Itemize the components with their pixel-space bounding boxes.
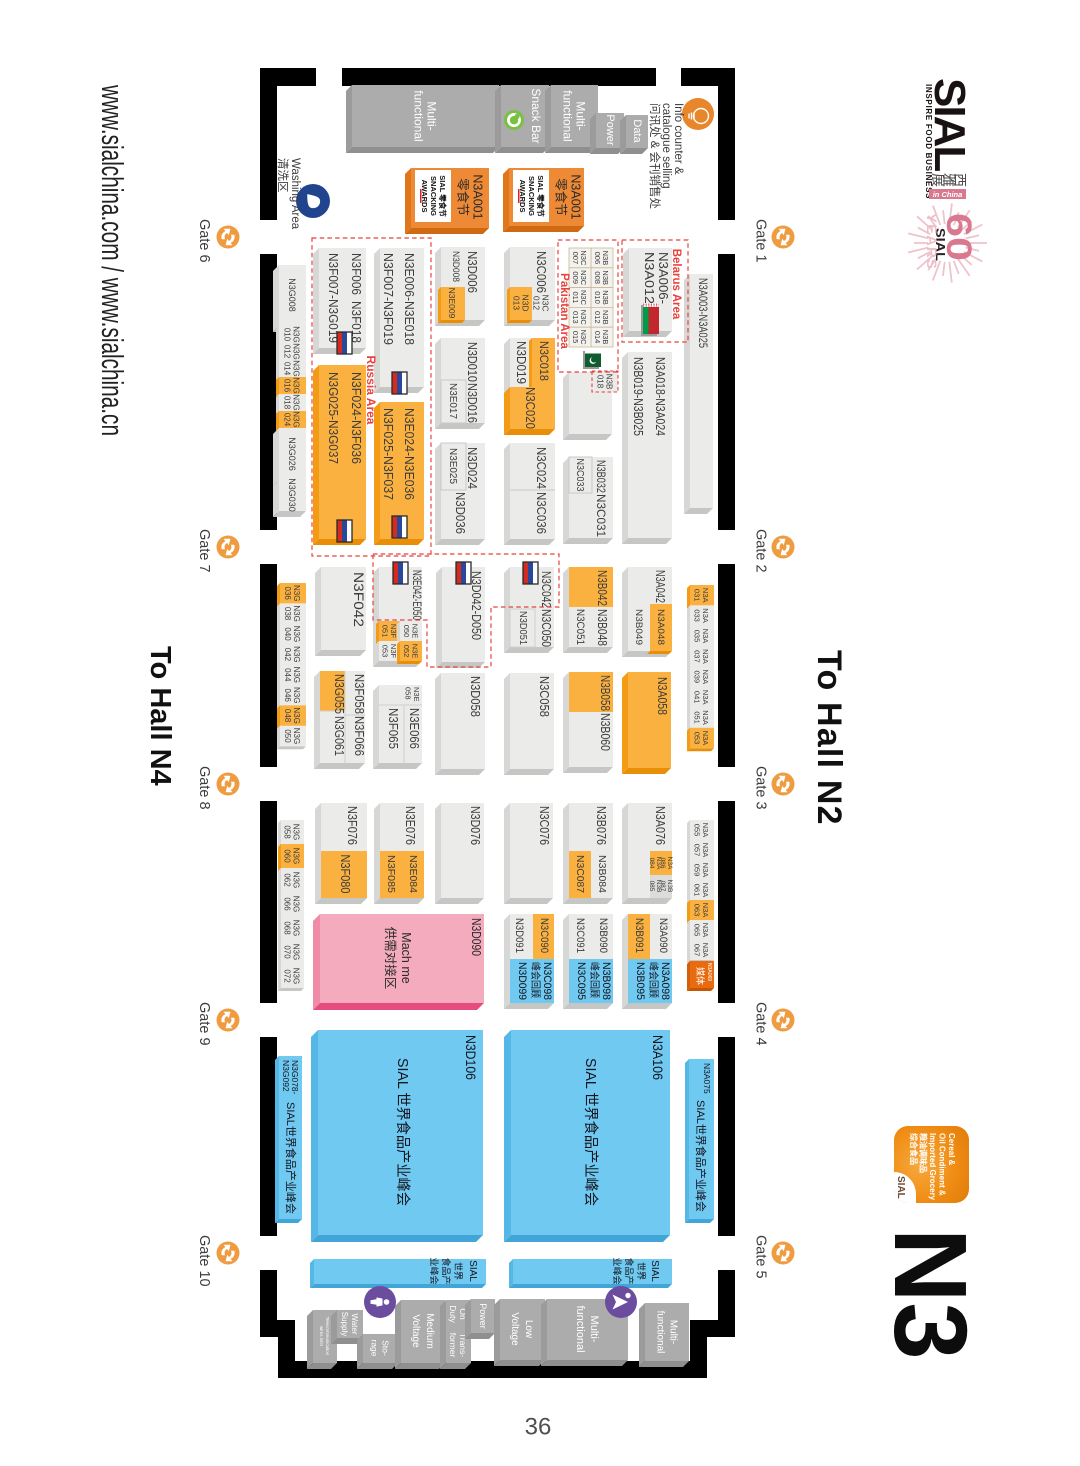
svg-text:N3C042: N3C042 bbox=[539, 571, 553, 608]
svg-text:www.sialchina.com / www.sialch: www.sialchina.com / www.sialchina.cn bbox=[96, 84, 131, 436]
svg-text:N3C090: N3C090 bbox=[538, 918, 550, 953]
svg-text:媒体: 媒体 bbox=[695, 967, 706, 985]
svg-text:Info counter &catalogue sellin: Info counter &catalogue selling问讯处 & 会刊销… bbox=[648, 103, 684, 210]
svg-text:N3F085: N3F085 bbox=[386, 855, 397, 893]
svg-text:N3B087: N3B087 bbox=[660, 880, 674, 893]
svg-text:N3A058: N3A058 bbox=[656, 677, 671, 715]
svg-text:N3A061: N3A061 bbox=[693, 883, 711, 898]
svg-text:业峰会: 业峰会 bbox=[429, 1257, 440, 1284]
svg-text:N3C051: N3C051 bbox=[574, 609, 586, 645]
svg-text:N3D058: N3D058 bbox=[469, 676, 484, 717]
svg-text:N3A057: N3A057 bbox=[693, 843, 711, 858]
svg-text:Data: Data bbox=[631, 119, 643, 143]
svg-text:N3E058: N3E058 bbox=[404, 687, 422, 702]
svg-text:N3D013: N3D013 bbox=[512, 294, 531, 311]
svg-text:N3A090: N3A090 bbox=[657, 918, 669, 953]
svg-text:N3C024: N3C024 bbox=[535, 447, 550, 489]
svg-text:世界: 世界 bbox=[453, 1262, 464, 1280]
svg-text:峰会回顾: 峰会回顾 bbox=[589, 962, 602, 998]
svg-text:N3C011: N3C011 bbox=[572, 290, 589, 306]
svg-text:N3B058: N3B058 bbox=[598, 675, 612, 711]
svg-text:峰会回顾: 峰会回顾 bbox=[648, 962, 661, 998]
svg-text:N3G062: N3G062 bbox=[283, 872, 301, 888]
svg-text:Gate 1: Gate 1 bbox=[753, 219, 769, 263]
svg-text:N3G078-N3G092: N3G078-N3G092 bbox=[281, 1060, 300, 1095]
svg-text:N3G048: N3G048 bbox=[284, 707, 302, 723]
svg-text:Gate 7: Gate 7 bbox=[196, 529, 212, 573]
svg-text:N3A035: N3A035 bbox=[693, 629, 711, 644]
svg-text:世界: 世界 bbox=[636, 1262, 647, 1280]
svg-text:N3D016: N3D016 bbox=[466, 383, 481, 423]
svg-text:N3D091: N3D091 bbox=[513, 918, 525, 953]
svg-text:N3C036: N3C036 bbox=[535, 492, 550, 534]
svg-text:N3A098: N3A098 bbox=[659, 962, 671, 1000]
svg-text:N3C033: N3C033 bbox=[574, 459, 586, 492]
svg-text:N3C006: N3C006 bbox=[535, 251, 550, 293]
svg-text:N3A059: N3A059 bbox=[693, 863, 711, 878]
svg-text:Gate 5: Gate 5 bbox=[753, 1235, 769, 1279]
svg-text:SIAL: SIAL bbox=[650, 1260, 661, 1282]
svg-text:N3C020: N3C020 bbox=[524, 387, 539, 429]
svg-text:N3F065: N3F065 bbox=[386, 708, 400, 749]
svg-text:N3G066: N3G066 bbox=[283, 896, 301, 912]
svg-text:N3B018: N3B018 bbox=[596, 374, 614, 390]
svg-text:N3G008: N3G008 bbox=[287, 278, 297, 312]
svg-text:N3G072: N3G072 bbox=[283, 968, 301, 984]
svg-text:N3A001零食节: N3A001零食节 bbox=[554, 174, 583, 219]
svg-text:N3B098: N3B098 bbox=[600, 962, 612, 1000]
svg-text:N3B014: N3B014 bbox=[594, 330, 611, 345]
svg-text:N3A041: N3A041 bbox=[693, 690, 711, 705]
svg-text:N3A048: N3A048 bbox=[656, 609, 666, 645]
svg-text:Washing Area清洗区: Washing Area清洗区 bbox=[276, 158, 301, 230]
svg-text:N3C095: N3C095 bbox=[575, 962, 587, 1000]
svg-text:Power: Power bbox=[604, 114, 616, 146]
svg-text:Gate 6: Gate 6 bbox=[196, 219, 212, 263]
svg-text:N3D090: N3D090 bbox=[470, 918, 485, 956]
svg-text:N3E009: N3E009 bbox=[447, 288, 457, 319]
svg-text:N3G050: N3G050 bbox=[284, 728, 302, 744]
svg-text:N3B090: N3B090 bbox=[597, 918, 609, 953]
svg-text:N3B091: N3B091 bbox=[633, 918, 645, 953]
svg-text:Pakistan Area: Pakistan Area bbox=[558, 273, 570, 349]
svg-text:N3A053: N3A053 bbox=[693, 731, 711, 746]
svg-text:Gate 10: Gate 10 bbox=[196, 1235, 212, 1287]
svg-text:N3D024: N3D024 bbox=[466, 447, 481, 489]
svg-text:N3C031: N3C031 bbox=[594, 494, 608, 537]
svg-text:N3B049: N3B049 bbox=[634, 609, 644, 645]
svg-text:N3E042-E050: N3E042-E050 bbox=[410, 570, 424, 620]
svg-text:SIAL世界食品产业峰会: SIAL世界食品产业峰会 bbox=[694, 1100, 708, 1212]
svg-text:N3E006-N3E018: N3E006-N3E018 bbox=[402, 253, 416, 345]
svg-text:N3G010: N3G010 bbox=[283, 326, 301, 342]
svg-text:N3B008: N3B008 bbox=[594, 270, 611, 285]
svg-text:N3F007-N3G019: N3F007-N3G019 bbox=[326, 253, 340, 343]
svg-text:N3C012: N3C012 bbox=[532, 294, 551, 311]
svg-text:N3A051: N3A051 bbox=[693, 710, 711, 725]
svg-text:N3G070: N3G070 bbox=[283, 944, 301, 960]
svg-text:Gate 2: Gate 2 bbox=[753, 529, 769, 573]
svg-text:N3E052: N3E052 bbox=[402, 644, 420, 659]
svg-text:N3B019-N3B025: N3B019-N3B025 bbox=[631, 357, 645, 436]
svg-text:N3F076: N3F076 bbox=[346, 806, 361, 845]
svg-text:N3D010: N3D010 bbox=[466, 342, 481, 382]
svg-text:To Hall N4: To Hall N4 bbox=[144, 646, 176, 786]
svg-text:N3D019: N3D019 bbox=[514, 341, 528, 384]
svg-text:SIAL 零食节SNACKINGAWARDS: SIAL 零食节SNACKINGAWARDS bbox=[519, 175, 547, 217]
svg-text:Gate 3: Gate 3 bbox=[753, 766, 769, 810]
svg-text:N3G014: N3G014 bbox=[283, 360, 301, 376]
svg-text:N3G018: N3G018 bbox=[283, 394, 301, 410]
svg-text:N3D042-D050: N3D042-D050 bbox=[470, 571, 485, 640]
svg-text:SIAL 零食节SNACKINGAWARDS: SIAL 零食节SNACKINGAWARDS bbox=[421, 175, 449, 217]
svg-text:N3E050: N3E050 bbox=[402, 624, 420, 639]
svg-text:N3A003-N3A025: N3A003-N3A025 bbox=[696, 278, 708, 348]
svg-text:N3F066: N3F066 bbox=[352, 716, 366, 756]
svg-text:N3B032: N3B032 bbox=[594, 460, 608, 493]
svg-text:Belarus Area: Belarus Area bbox=[670, 249, 682, 320]
svg-text:Power: Power bbox=[478, 1303, 488, 1329]
svg-text:N3G036: N3G036 bbox=[284, 585, 302, 601]
svg-text:N3C098: N3C098 bbox=[541, 962, 553, 1000]
svg-text:in China: in China bbox=[933, 190, 963, 199]
svg-text:N3A033: N3A033 bbox=[693, 608, 711, 623]
svg-text:SIAL: SIAL bbox=[896, 1176, 907, 1199]
svg-text:N3: N3 bbox=[874, 1228, 989, 1360]
svg-text:N3F080: N3F080 bbox=[339, 855, 354, 894]
svg-text:SIAL: SIAL bbox=[468, 1260, 479, 1282]
svg-text:N3G025-N3G037: N3G025-N3G037 bbox=[326, 372, 340, 464]
svg-text:SIAL世界食品产业峰会: SIAL世界食品产业峰会 bbox=[284, 1102, 298, 1214]
svg-text:N3F024-N3F036: N3F024-N3F036 bbox=[349, 372, 363, 464]
svg-text:N3G055: N3G055 bbox=[332, 674, 346, 714]
svg-text:N3D006: N3D006 bbox=[466, 251, 481, 293]
svg-text:N3F025-N3F037: N3F025-N3F037 bbox=[381, 408, 395, 500]
svg-text:N3A018-N3A024: N3A018-N3A024 bbox=[653, 357, 667, 436]
svg-text:N3A075: N3A075 bbox=[702, 1063, 712, 1094]
svg-text:N3A039: N3A039 bbox=[693, 670, 711, 685]
svg-text:N3C007: N3C007 bbox=[572, 250, 589, 266]
svg-text:N3C058: N3C058 bbox=[538, 676, 553, 717]
svg-text:食品产: 食品产 bbox=[624, 1257, 635, 1284]
svg-text:N3E084: N3E084 bbox=[408, 855, 419, 893]
svg-text:N3C018: N3C018 bbox=[537, 341, 549, 381]
svg-text:N3G038: N3G038 bbox=[284, 605, 302, 621]
svg-text:N3G026: N3G026 bbox=[287, 437, 297, 471]
svg-text:N3C091: N3C091 bbox=[574, 918, 586, 953]
svg-text:WaterSupply: WaterSupply bbox=[341, 1312, 360, 1336]
svg-text:N3G030: N3G030 bbox=[287, 478, 297, 512]
svg-text:Gate 9: Gate 9 bbox=[196, 1002, 212, 1046]
svg-text:N3D106: N3D106 bbox=[464, 1035, 479, 1080]
svg-text:N3G061: N3G061 bbox=[332, 716, 346, 756]
svg-text:N3B060: N3B060 bbox=[598, 713, 612, 751]
svg-text:N3A076: N3A076 bbox=[654, 806, 669, 845]
svg-text:SIAL 世界食品产业峰会: SIAL 世界食品产业峰会 bbox=[582, 1058, 599, 1206]
svg-text:N3A055: N3A055 bbox=[693, 823, 711, 838]
svg-text:YEARS: YEARS bbox=[925, 213, 940, 270]
svg-text:食品产: 食品产 bbox=[441, 1257, 452, 1284]
svg-text:Gate 4: Gate 4 bbox=[753, 1002, 769, 1046]
svg-text:N3B048: N3B048 bbox=[595, 609, 609, 646]
svg-text:N3A006-N3A012: N3A006-N3A012 bbox=[642, 252, 670, 304]
svg-text:N3A037: N3A037 bbox=[693, 649, 711, 664]
svg-text:N3G046: N3G046 bbox=[284, 687, 302, 703]
svg-text:Sto-rage: Sto-rage bbox=[370, 1339, 391, 1356]
svg-text:N3F007-N3F019: N3F007-N3F019 bbox=[381, 253, 395, 345]
svg-text:N3G040: N3G040 bbox=[284, 626, 302, 642]
svg-text:N3C087: N3C087 bbox=[575, 855, 586, 893]
svg-text:N3G012: N3G012 bbox=[283, 343, 301, 359]
svg-text:N3G044: N3G044 bbox=[284, 667, 302, 683]
svg-text:N3C076: N3C076 bbox=[538, 806, 553, 845]
svg-text:To Hall N2: To Hall N2 bbox=[810, 650, 848, 826]
svg-text:N3G068: N3G068 bbox=[283, 920, 301, 936]
svg-text:N3A001零食节: N3A001零食节 bbox=[456, 174, 485, 219]
svg-text:N3E017: N3E017 bbox=[447, 383, 459, 419]
svg-text:N3C013: N3C013 bbox=[572, 310, 589, 326]
svg-text:N3C050: N3C050 bbox=[539, 609, 553, 647]
svg-text:N3C009: N3C009 bbox=[572, 270, 589, 286]
svg-text:N3B012: N3B012 bbox=[594, 310, 611, 325]
svg-text:N3F042: N3F042 bbox=[351, 572, 367, 627]
svg-text:峰会回顾: 峰会回顾 bbox=[530, 962, 543, 998]
svg-text:N3D008: N3D008 bbox=[451, 251, 462, 282]
svg-text:N3B076: N3B076 bbox=[595, 806, 610, 845]
svg-text:N3B084: N3B084 bbox=[597, 855, 608, 893]
svg-text:N3B095: N3B095 bbox=[634, 962, 646, 1000]
svg-text:N3F053: N3F053 bbox=[381, 644, 399, 659]
svg-text:N3A042: N3A042 bbox=[654, 570, 669, 603]
svg-text:N3G016: N3G016 bbox=[283, 377, 301, 393]
svg-text:SIAL 世界食品产业峰会: SIAL 世界食品产业峰会 bbox=[394, 1058, 411, 1206]
svg-text:N3A069: N3A069 bbox=[706, 963, 712, 981]
svg-text:N3B006: N3B006 bbox=[594, 251, 611, 266]
svg-text:N3A067: N3A067 bbox=[693, 943, 711, 958]
svg-text:N3A063: N3A063 bbox=[693, 903, 711, 918]
svg-text:Snack Bar: Snack Bar bbox=[529, 88, 543, 143]
svg-text:N3E076: N3E076 bbox=[404, 806, 419, 845]
svg-text:N3G060: N3G060 bbox=[283, 848, 301, 864]
svg-text:N3D076: N3D076 bbox=[469, 806, 484, 845]
svg-text:N3F006: N3F006 bbox=[349, 253, 363, 295]
svg-text:N3B010: N3B010 bbox=[594, 290, 611, 305]
svg-text:N3E025: N3E025 bbox=[447, 448, 459, 484]
svg-text:N3E066: N3E066 bbox=[407, 708, 421, 749]
svg-text:N3G042: N3G042 bbox=[284, 646, 302, 662]
svg-text:N3A065: N3A065 bbox=[693, 923, 711, 938]
svg-text:N3C015: N3C015 bbox=[572, 330, 589, 346]
svg-text:N3A086: N3A086 bbox=[660, 857, 674, 870]
svg-text:36: 36 bbox=[525, 1414, 552, 1441]
svg-text:N3B042: N3B042 bbox=[595, 570, 609, 606]
svg-text:N3E024-N3E036: N3E024-N3E036 bbox=[402, 408, 416, 500]
svg-text:Russia Area: Russia Area bbox=[364, 356, 378, 425]
svg-text:N3D051: N3D051 bbox=[517, 611, 529, 645]
svg-text:N3F051: N3F051 bbox=[381, 624, 399, 639]
svg-text:Gate 8: Gate 8 bbox=[196, 766, 212, 810]
svg-text:N3G058: N3G058 bbox=[283, 824, 301, 840]
svg-text:N3D099: N3D099 bbox=[516, 962, 528, 1000]
svg-text:N3G024: N3G024 bbox=[283, 411, 301, 427]
svg-text:N3F058: N3F058 bbox=[352, 674, 366, 714]
svg-text:N3A106: N3A106 bbox=[651, 1035, 666, 1080]
svg-text:N3A031: N3A031 bbox=[693, 588, 711, 603]
svg-text:业峰会: 业峰会 bbox=[612, 1257, 623, 1284]
svg-text:展: 展 bbox=[930, 173, 946, 187]
svg-text:N3D036: N3D036 bbox=[454, 492, 469, 534]
